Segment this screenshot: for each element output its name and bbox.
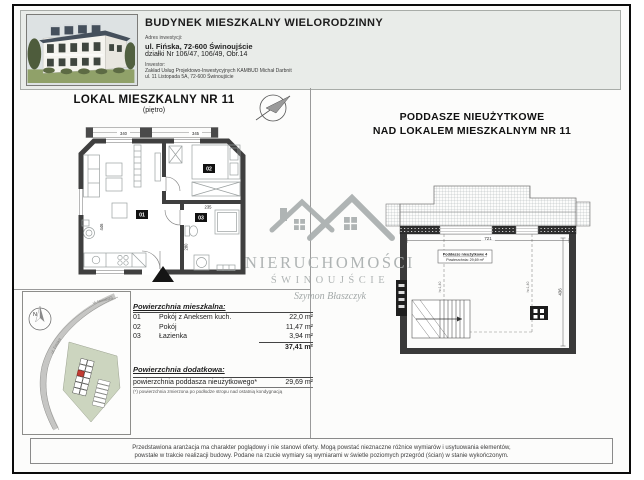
table-row: 02 Pokój 11,47 m²	[133, 323, 313, 333]
attic-floor-plan: 721 436 h=1,40 h=1,40 Poddasze nieużytko…	[382, 182, 594, 367]
investor-line2: ul. 11 Listopada 5A, 72-600 Świnoujście	[145, 74, 445, 80]
building-photo	[26, 14, 138, 86]
dim-446: 446	[99, 223, 104, 231]
document-title: BUDYNEK MIESZKALNY WIELORODZINNY	[145, 17, 445, 29]
watermark-house-logo	[264, 190, 396, 246]
room-label-02: 02	[206, 167, 212, 173]
header-band: BUDYNEK MIESZKALNY WIELORODZINNY Adres i…	[20, 10, 621, 90]
disclaimer-line1: Przedstawiona aranżacja ma charakter pog…	[31, 444, 612, 452]
attic-plan-title: PODDASZE NIEUŻYTKOWE NAD LOKALEM MIESZKA…	[336, 110, 608, 138]
entrance-triangle-marker	[152, 266, 174, 287]
dim-235: 235	[205, 205, 213, 210]
dim-width: 721	[484, 236, 492, 241]
apartment-floor-plan: 01 02 03 340 345 235 446 280	[76, 127, 248, 284]
dim-340: 340	[120, 131, 128, 136]
dim-345: 345	[192, 131, 200, 136]
site-boundary	[63, 342, 120, 422]
row-value: 22,0 m²	[263, 313, 313, 323]
staircase	[412, 300, 470, 338]
roof-hatch	[400, 186, 576, 226]
total-area-value: 37,41 m²	[259, 342, 313, 353]
scanned-plan-page: BUDYNEK MIESZKALNY WIELORODZINNY Adres i…	[12, 4, 631, 474]
north-arrow-icon	[252, 90, 294, 129]
row-no: 01	[133, 313, 159, 323]
residential-area-header: Powierzchnia mieszkalna:	[133, 302, 313, 313]
site-map: N ul. Fińska ul. Norweska	[22, 291, 131, 435]
title-block: BUDYNEK MIESZKALNY WIELORODZINNY Adres i…	[145, 17, 445, 80]
additional-name: powierzchnia poddasza nieużytkowego*	[133, 378, 263, 388]
dim-280: 280	[184, 243, 189, 251]
row-name: Łazienka	[159, 332, 263, 342]
row-value: 3,94 m²	[263, 332, 313, 342]
knee-height-label-right: h=1,40	[526, 282, 530, 293]
table-row: 03 Łazienka 3,94 m²	[133, 332, 313, 342]
chimney-block	[396, 280, 407, 316]
apartment-subtitle-text: (piętro)	[44, 107, 264, 114]
apartment-plan-title: LOKAL MIESZKALNY NR 11 (piętro)	[44, 94, 264, 114]
address-line2: działki Nr 106/47, 106/49, Obr.14	[145, 51, 445, 58]
attic-label-box: Poddasze nieużytkowe 4 Powierzchnia: 29,…	[438, 250, 492, 263]
room-label-03: 03	[198, 216, 204, 222]
row-no: 02	[133, 323, 159, 333]
knee-wall-band	[400, 226, 576, 234]
knee-height-label-left: h=1,40	[438, 282, 442, 293]
areas-table: Powierzchnia mieszkalna: 01 Pokój z Anek…	[133, 302, 313, 394]
attic-title-line1: PODDASZE NIEUŻYTKOWE	[336, 110, 608, 124]
panel-divider-horizontal	[14, 289, 310, 290]
area-footnote: (*) powierzchnia zmierzona po podłodze s…	[133, 387, 313, 394]
apartment-title-text: LOKAL MIESZKALNY NR 11	[44, 94, 264, 106]
row-name: Pokój	[159, 323, 263, 333]
compass-rose: N	[29, 306, 51, 330]
roof-window	[530, 306, 548, 320]
disclaimer-box: Przedstawiona aranżacja ma charakter pog…	[30, 438, 613, 464]
table-row: 01 Pokój z Aneksem kuch. 22,0 m²	[133, 313, 313, 323]
attic-title-line2: NAD LOKALEM MIESZKALNYM NR 11	[336, 124, 608, 138]
disclaimer-line2: powstałe w trakcie realizacji budowy. Po…	[31, 452, 612, 460]
additional-area-header: Powierzchnia dodatkowa:	[133, 365, 313, 375]
address-line1: ul. Fińska, 72-600 Świnoujście	[145, 42, 445, 51]
room-label-01: 01	[139, 213, 145, 219]
attic-dimension-labels: 721 436 h=1,40 h=1,40	[438, 236, 563, 296]
additional-area-row: powierzchnia poddasza nieużytkowego* 29,…	[133, 377, 313, 388]
row-value: 11,47 m²	[263, 323, 313, 333]
dim-height: 436	[558, 288, 563, 296]
north-letter: N	[33, 312, 37, 318]
row-name: Pokój z Aneksem kuch.	[159, 313, 263, 323]
attic-label-line1: Poddasze nieużytkowe 4	[443, 252, 488, 256]
highlighted-unit	[77, 370, 85, 377]
building-rendering	[27, 15, 135, 83]
row-no: 03	[133, 332, 159, 342]
additional-value: 29,69 m²	[263, 378, 313, 388]
address-label: Adres inwestycji:	[145, 35, 445, 41]
attic-label-line2: Powierzchnia: 29,69 m²	[446, 258, 484, 262]
